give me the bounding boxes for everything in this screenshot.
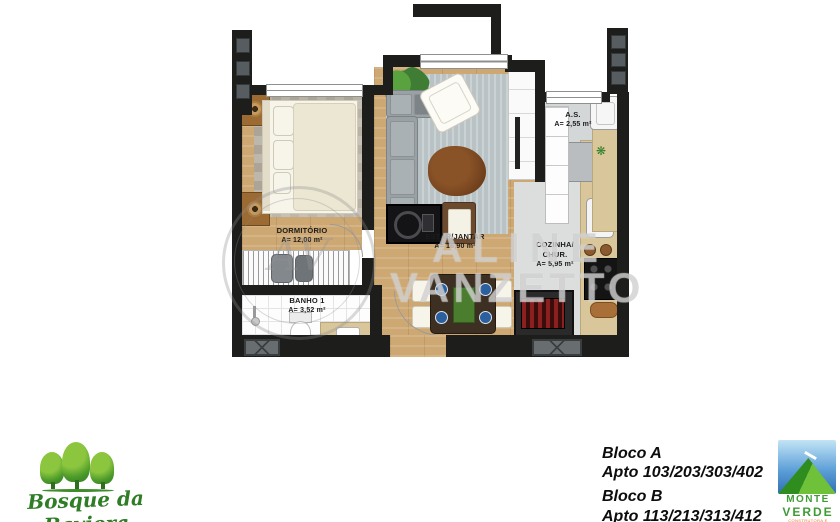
barbecue-grill bbox=[514, 290, 574, 339]
bed-headboard bbox=[263, 101, 270, 211]
entry-door-gap bbox=[390, 335, 446, 357]
room-label-estar: ESTAR/JANTAR A= 16,90 m² bbox=[396, 232, 514, 252]
bloco-b-label: Bloco B bbox=[602, 487, 763, 506]
bed-pillow bbox=[273, 140, 294, 170]
bloco-a-label: Bloco A bbox=[602, 444, 763, 463]
knob-icon bbox=[600, 244, 612, 256]
room-name: BANHO 1 bbox=[289, 296, 324, 306]
room-area: A= 12,00 m² bbox=[281, 236, 322, 245]
monte-verde-logo: MONTE VERDE CONSTRUTORA E INCORPORADORA bbox=[777, 440, 839, 520]
bed-duvet bbox=[293, 103, 356, 211]
mountain-icon bbox=[778, 440, 836, 494]
room-name: CHUR. bbox=[543, 250, 568, 260]
living-window bbox=[420, 54, 508, 69]
tree-icon bbox=[40, 452, 64, 484]
room-area: A= 3,52 m² bbox=[288, 306, 325, 315]
bread-basket bbox=[590, 302, 618, 318]
shag-rug bbox=[428, 146, 486, 196]
table-runner bbox=[453, 287, 475, 323]
clothes-pile bbox=[295, 255, 313, 282]
plate bbox=[479, 283, 492, 296]
shaft-duct bbox=[244, 339, 280, 356]
bloco-a-aptos: Apto 103/203/303/402 bbox=[602, 463, 763, 482]
room-label-cozinha: COZINHA/ CHUR. A= 5,95 m² bbox=[516, 240, 594, 270]
clothes-pile bbox=[271, 254, 293, 283]
room-label-dormitorio: DORMITÓRIO A= 12,00 m² bbox=[242, 226, 362, 246]
floorplan-page: ❋ DORMITÓR bbox=[0, 0, 840, 522]
room-area: A= 16,90 m² bbox=[434, 242, 475, 251]
plant-small-icon: ❋ bbox=[596, 144, 606, 158]
tv-icon bbox=[515, 117, 520, 169]
room-name: ESTAR/JANTAR bbox=[425, 232, 484, 242]
tree-trunk bbox=[51, 482, 55, 489]
bed-pillow bbox=[273, 172, 291, 194]
room-area: A= 2,55 m² bbox=[554, 120, 591, 129]
double-bed bbox=[262, 100, 358, 214]
bosque-script-text: Bosque da Baviera bbox=[5, 485, 167, 522]
wall-right bbox=[617, 92, 629, 335]
room-name: COZINHA/ bbox=[536, 240, 574, 250]
wall-left bbox=[232, 85, 242, 357]
service-window bbox=[546, 91, 602, 104]
plate bbox=[479, 311, 492, 324]
monte-verde-name: MONTE VERDE CONSTRUTORA E INCORPORADORA bbox=[777, 495, 839, 522]
bosque-da-baviera-logo: Bosque da Baviera bbox=[6, 436, 166, 520]
room-label-banho: BANHO 1 A= 3,52 m² bbox=[252, 296, 362, 316]
room-label-as: A.S. A= 2,55 m² bbox=[538, 110, 608, 130]
wall-bathroom-right bbox=[370, 285, 382, 343]
tv-cabinet bbox=[508, 64, 536, 180]
room-area: A= 5,95 m² bbox=[536, 260, 573, 269]
wall-bedroom-living bbox=[362, 95, 374, 230]
room-name: A.S. bbox=[565, 110, 580, 120]
wall-connector bbox=[491, 17, 501, 59]
room-name: DORMITÓRIO bbox=[277, 226, 328, 236]
wall-bathroom-top bbox=[232, 285, 382, 295]
unit-info: Bloco A Apto 103/203/303/402 Bloco B Apt… bbox=[602, 444, 763, 522]
bedroom-window bbox=[266, 84, 363, 97]
bed-pillow bbox=[273, 106, 294, 136]
shaft-duct bbox=[532, 339, 582, 356]
bloco-b-aptos: Apto 113/213/313/412 bbox=[602, 507, 763, 522]
lamp-icon bbox=[247, 201, 263, 217]
wall-top-bar bbox=[413, 4, 501, 17]
tree-icon bbox=[62, 442, 90, 482]
tree-icon bbox=[90, 452, 114, 484]
